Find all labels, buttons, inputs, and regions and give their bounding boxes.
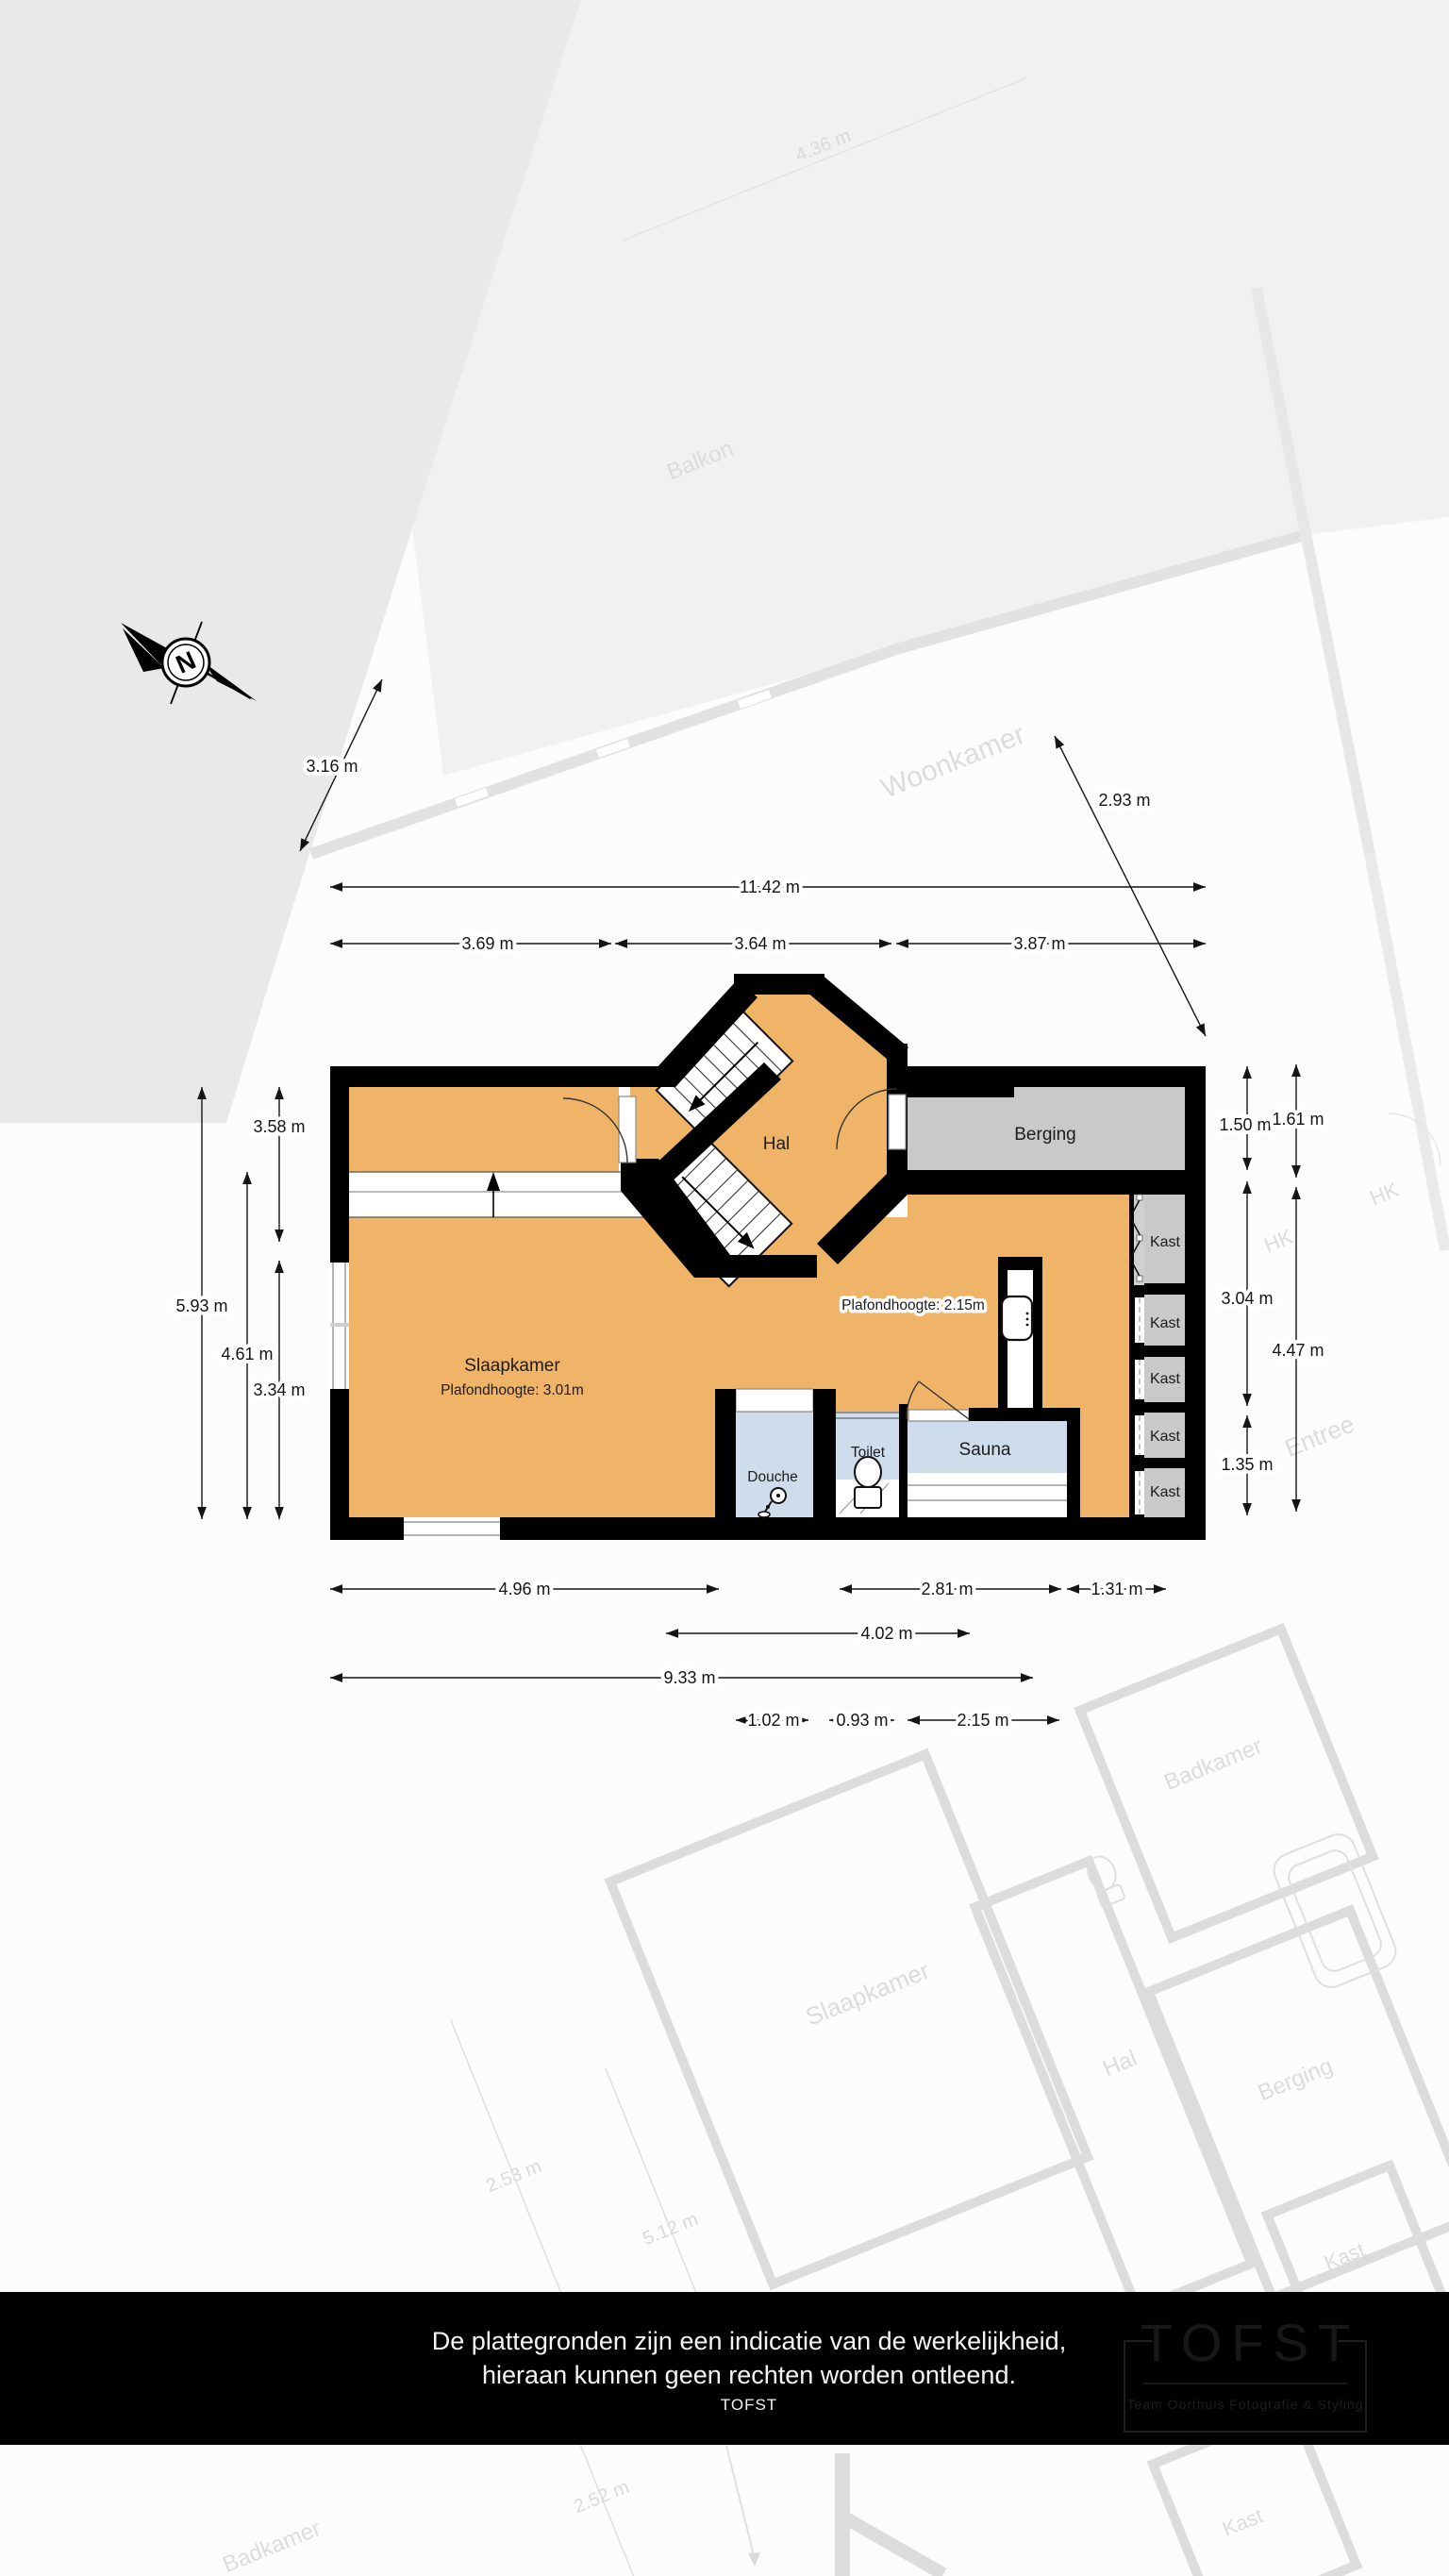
douche-threshold	[736, 1389, 813, 1412]
ghost-room-hk: HK	[1366, 1178, 1402, 1211]
label-ceiling-high: Plafondhoogte: 3.01m	[441, 1382, 584, 1398]
svg-text:4.96 m: 4.96 m	[498, 1580, 550, 1598]
svg-text:1.35 m: 1.35 m	[1221, 1455, 1273, 1474]
svg-text:3.69 m: 3.69 m	[461, 934, 513, 953]
label-hal: Hal	[763, 1134, 791, 1154]
label-kast: Kast	[1150, 1234, 1181, 1250]
logo-subtitle: Team Oorthuis Fotografie & Styling	[1126, 2397, 1363, 2412]
ghost-room-slaapkamer: Slaapkamer	[802, 1956, 934, 2032]
ghost-room-badkamer: Badkamer	[219, 2516, 325, 2576]
svg-text:2.81 m: 2.81 m	[921, 1580, 973, 1598]
disclaimer-line3: TOFST	[721, 2396, 777, 2414]
label-kast: Kast	[1150, 1371, 1181, 1387]
svg-text:4.02 m: 4.02 m	[860, 1624, 912, 1643]
svg-text:5.12 m: 5.12 m	[640, 2209, 701, 2250]
label-slaapkamer: Slaapkamer	[464, 1356, 560, 1376]
svg-text:4.47 m: 4.47 m	[1272, 1341, 1324, 1360]
svg-text:2.93 m: 2.93 m	[1098, 791, 1150, 810]
svg-text:9.33 m: 9.33 m	[663, 1668, 715, 1687]
svg-text:3.34 m: 3.34 m	[253, 1380, 305, 1399]
ghost-room-entree: Entree	[1280, 1409, 1357, 1463]
floorplan: Hal Berging Slaapkamer Plafondhoogte: 3.…	[330, 974, 1206, 1540]
svg-text:2.52 m: 2.52 m	[571, 2477, 632, 2517]
footer-bar: De plattegronden zijn een indicatie van …	[0, 2292, 1449, 2445]
disclaimer-line2: hieraan kunnen geen rechten worden ontle…	[482, 2361, 1016, 2389]
floorplan-canvas: 4.36 m Woonkamer Balkon HK HK Entree Sla…	[0, 0, 1449, 2576]
disclaimer-line1: De plattegronden zijn een indicatie van …	[432, 2327, 1066, 2355]
svg-text:3.87 m: 3.87 m	[1013, 934, 1065, 953]
ghost-room-hal: Hal	[1099, 2046, 1141, 2083]
ghost-wall	[840, 2515, 943, 2574]
svg-text:1.02 m: 1.02 m	[747, 1711, 799, 1730]
ghost-room-hk: HK	[1260, 1225, 1296, 1258]
svg-text:11.42 m: 11.42 m	[740, 878, 800, 896]
svg-text:1.61 m: 1.61 m	[1272, 1110, 1324, 1129]
label-berging: Berging	[1014, 1125, 1076, 1145]
svg-text:0.93 m: 0.93 m	[836, 1711, 888, 1730]
svg-text:3.04 m: 3.04 m	[1221, 1289, 1273, 1308]
svg-text:2.53 m: 2.53 m	[483, 2156, 544, 2197]
label-kast: Kast	[1150, 1315, 1181, 1331]
svg-text:4.61 m: 4.61 m	[221, 1345, 273, 1363]
svg-text:3.64 m: 3.64 m	[734, 934, 786, 953]
ghost-room-woonkamer: Woonkamer	[877, 719, 1030, 805]
label-douche: Douche	[747, 1469, 797, 1485]
ghost-room-kast: Kast	[1219, 2503, 1266, 2541]
sauna-threshold	[908, 1410, 969, 1421]
svg-text:3.16 m: 3.16 m	[306, 757, 358, 776]
label-kast: Kast	[1150, 1484, 1181, 1500]
vide-band	[349, 1172, 660, 1217]
ghost-bathtub-icon	[1269, 1830, 1401, 1993]
sauna-bench	[908, 1473, 1067, 1517]
label-kast: Kast	[1150, 1429, 1181, 1445]
ghost-arrow	[726, 2446, 755, 2559]
duct-hatch-icon	[1002, 1296, 1032, 1340]
ghost-room-berging: Berging	[1255, 2053, 1337, 2106]
door-jamb	[619, 1096, 636, 1163]
svg-text:1.31 m: 1.31 m	[1091, 1580, 1142, 1598]
door-jamb	[889, 1095, 906, 1149]
svg-text:5.93 m: 5.93 m	[175, 1296, 227, 1315]
toilet-icon	[855, 1457, 881, 1508]
label-toilet: Toilet	[851, 1445, 886, 1461]
ghost-room-badkamer: Badkamer	[1160, 1733, 1266, 1796]
svg-text:1.50 m: 1.50 m	[1219, 1115, 1271, 1134]
svg-text:2.15 m: 2.15 m	[957, 1711, 1008, 1730]
label-ceiling-low: Plafondhoogte: 2.15m	[841, 1297, 985, 1313]
svg-text:3.58 m: 3.58 m	[253, 1117, 305, 1136]
floorplan-page: 4.36 m Woonkamer Balkon HK HK Entree Sla…	[0, 0, 1449, 2576]
label-sauna: Sauna	[959, 1440, 1011, 1460]
logo-title: TOFST	[1141, 2313, 1360, 2372]
